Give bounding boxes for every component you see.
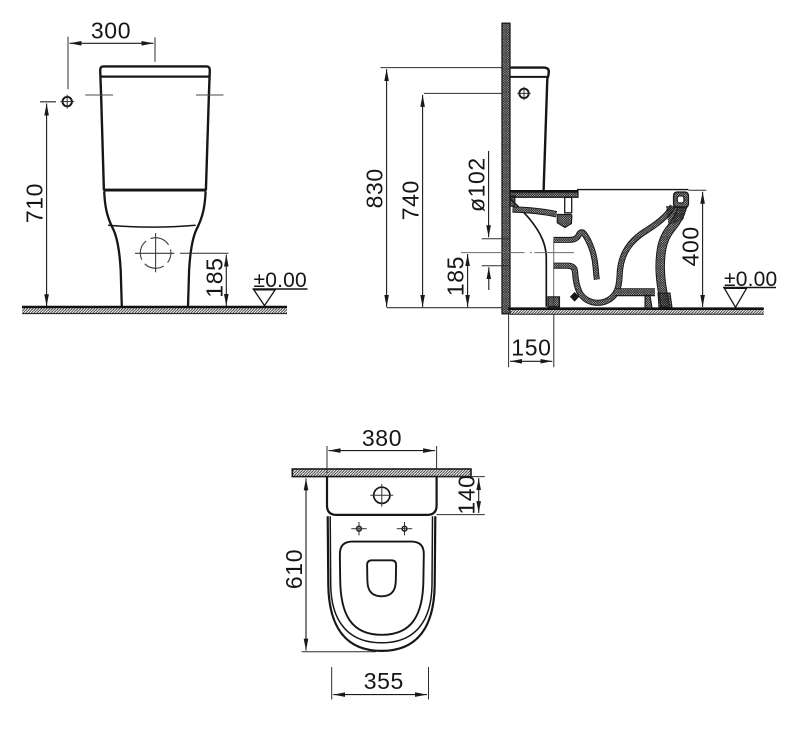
svg-text:150: 150: [511, 335, 551, 361]
svg-text:185: 185: [443, 256, 469, 296]
svg-text:380: 380: [362, 425, 402, 451]
svg-text:610: 610: [281, 549, 307, 589]
svg-text:ø102: ø102: [464, 157, 490, 212]
svg-text:830: 830: [362, 168, 388, 208]
svg-text:300: 300: [91, 18, 131, 44]
svg-text:400: 400: [678, 226, 704, 266]
svg-text:740: 740: [398, 180, 424, 220]
svg-text:140: 140: [454, 474, 480, 514]
svg-text:710: 710: [22, 183, 48, 223]
svg-text:185: 185: [201, 258, 227, 298]
svg-text:355: 355: [364, 668, 404, 694]
